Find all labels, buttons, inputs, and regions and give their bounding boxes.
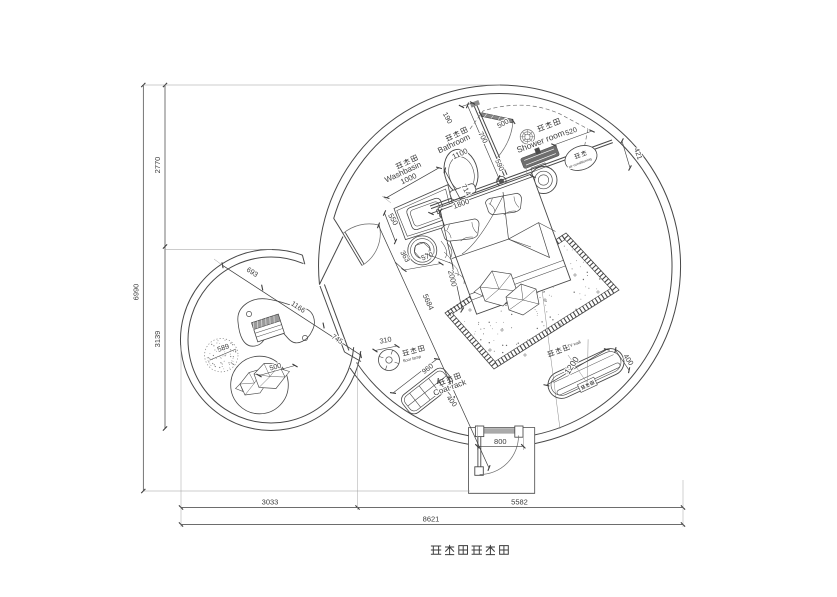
svg-text:800: 800 (494, 437, 507, 446)
svg-text:3033: 3033 (262, 498, 279, 507)
svg-text:2770: 2770 (153, 157, 162, 174)
svg-text:6990: 6990 (132, 284, 141, 301)
svg-text:3139: 3139 (153, 331, 162, 348)
svg-text:5582: 5582 (511, 498, 528, 507)
svg-text:8621: 8621 (423, 515, 440, 524)
